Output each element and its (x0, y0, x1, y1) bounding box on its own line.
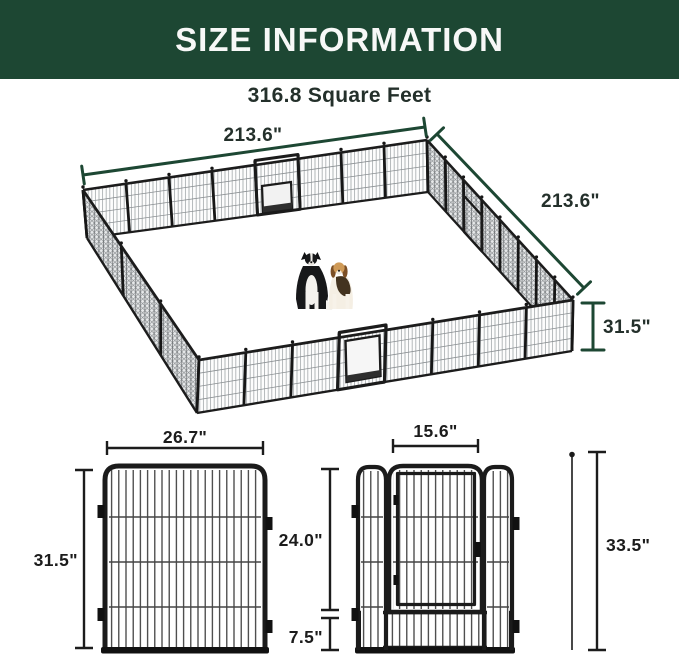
gate-bottom-label: 7.5" (289, 627, 323, 647)
header-banner: SIZE INFORMATION (0, 0, 679, 79)
door-width-label: 15.6" (413, 425, 457, 441)
single-panel-diagram (98, 466, 273, 654)
top-width-label: 213.6" (224, 125, 283, 146)
dimension-panel-width: 26.7" (107, 427, 263, 455)
area-subtitle: 316.8 Square Feet (0, 84, 679, 108)
gate-panel-diagram (352, 466, 520, 654)
door-hinge-bottom (394, 575, 399, 585)
panel-dimension-diagrams: 26.7" 31.5" 24.0" 7.5" (0, 425, 679, 655)
ground-stake-illustration (569, 452, 575, 650)
playpen-isometric-diagram: 213.6" 213.6" 31.5" (0, 112, 679, 425)
height-label: 31.5" (603, 317, 651, 338)
dimension-door-height: 24.0" (279, 469, 339, 610)
right-depth-label: 213.6" (541, 191, 600, 212)
stake-length-label: 33.5" (606, 535, 650, 555)
panel-width-label: 26.7" (163, 427, 207, 447)
dimension-panel-height: 31.5" (34, 470, 93, 648)
dimension-door-width: 15.6" (393, 425, 478, 453)
door-height-label: 24.0" (279, 530, 323, 550)
size-information-page: SIZE INFORMATION 316.8 Square Feet (0, 0, 679, 655)
dimension-height: 31.5" (582, 303, 651, 350)
page-title: SIZE INFORMATION (175, 21, 504, 59)
dimension-gate-bottom: 7.5" (289, 618, 339, 650)
door-latch (475, 542, 482, 557)
door-hinge-top (394, 495, 399, 505)
panel-height-label: 31.5" (34, 550, 78, 570)
dimension-stake-length: 33.5" (588, 452, 650, 650)
